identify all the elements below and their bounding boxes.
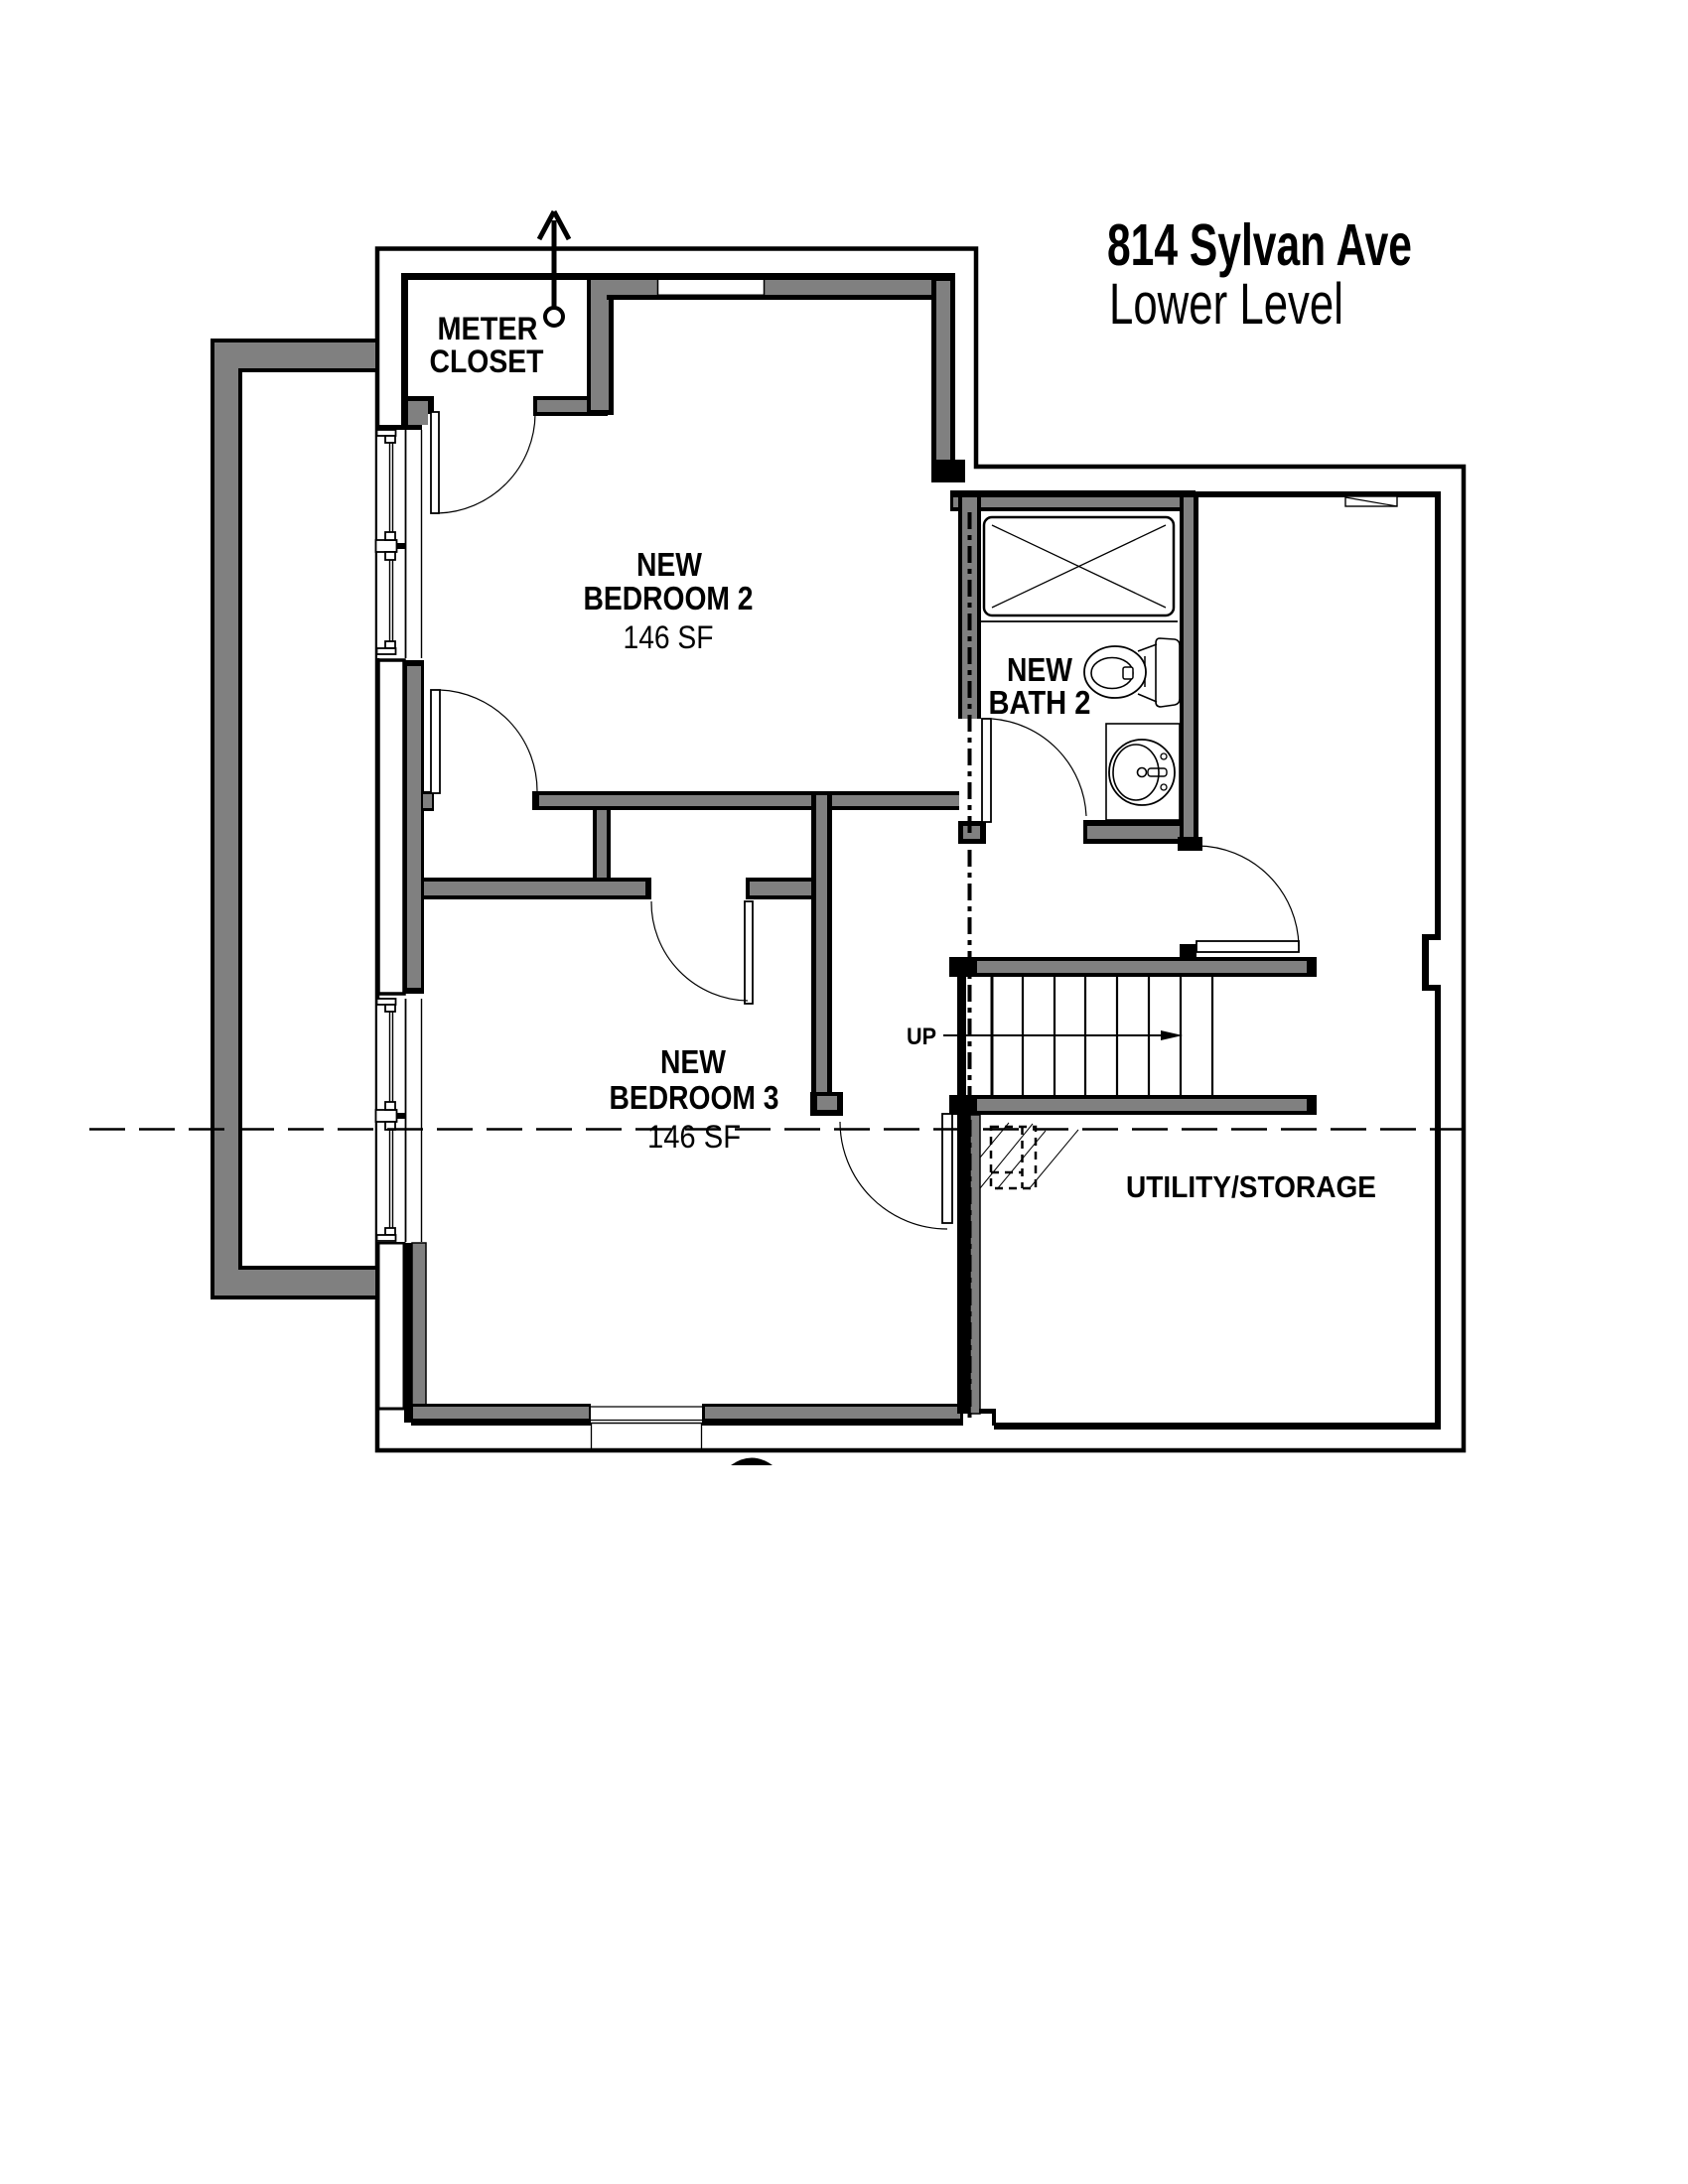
svg-text:814 Sylvan Ave: 814 Sylvan Ave	[1107, 212, 1412, 278]
svg-text:UP: UP	[907, 1024, 936, 1050]
svg-text:Lower Level: Lower Level	[1109, 272, 1343, 337]
svg-text:CLOSET: CLOSET	[430, 343, 544, 379]
svg-text:BATH 2: BATH 2	[989, 684, 1091, 721]
svg-text:BEDROOM 2: BEDROOM 2	[584, 580, 754, 616]
svg-text:146 SF: 146 SF	[624, 619, 714, 655]
svg-text:NEW: NEW	[1007, 651, 1073, 688]
svg-text:METER: METER	[438, 311, 538, 346]
svg-text:BEDROOM 3: BEDROOM 3	[610, 1079, 779, 1116]
svg-text:NEW: NEW	[636, 546, 703, 583]
svg-text:UTILITY/STORAGE: UTILITY/STORAGE	[1126, 1169, 1376, 1204]
svg-text:NEW: NEW	[660, 1043, 727, 1080]
svg-text:146 SF: 146 SF	[647, 1119, 741, 1155]
